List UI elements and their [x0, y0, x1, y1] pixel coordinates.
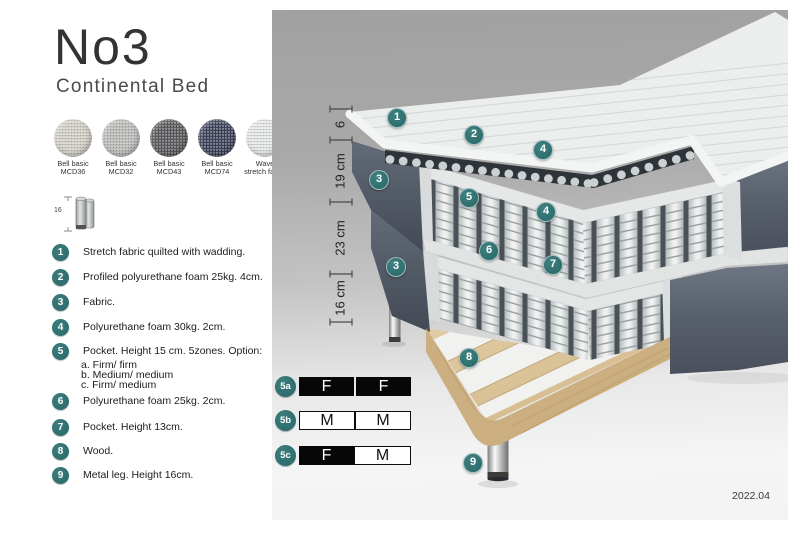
swatch-label: Bell basicMCD43 — [145, 160, 193, 177]
legend-number: 4 — [52, 319, 69, 336]
firmness-id: 5b — [275, 410, 296, 431]
legend-item-7: 7Pocket. Height 13cm. — [52, 419, 183, 436]
legend-text: Metal leg. Height 16cm. — [83, 467, 193, 484]
firmness-box: MM — [299, 411, 411, 430]
legend-number: 8 — [52, 443, 69, 460]
bed-cutaway-diagram: 619 cm23 cm16 cm — [272, 10, 788, 520]
fabric-base-right — [670, 264, 788, 374]
legend-item-9: 9Metal leg. Height 16cm. — [52, 467, 193, 484]
product-photo-panel: 619 cm23 cm16 cm 12435467389 5aFF5bMM5cF… — [272, 10, 788, 520]
legend-number: 5 — [52, 343, 69, 360]
legend-text: Pocket. Height 15 cm. 5zones. Option: — [83, 343, 262, 360]
firmness-cell: F — [356, 377, 411, 396]
firmness-cell: F — [299, 446, 354, 465]
swatch-circle — [54, 119, 92, 157]
firmness-cell: F — [299, 377, 354, 396]
legend-number: 7 — [52, 419, 69, 436]
legend-text: Stretch fabric quilted with wadding. — [83, 244, 245, 261]
firmness-id: 5a — [275, 376, 296, 397]
page-subtitle: Continental Bed — [56, 76, 209, 98]
legend-text: Profiled polyurethane foam 25kg. 4cm. — [83, 269, 263, 286]
swatch-label: Bell basicMCD36 — [49, 160, 97, 177]
dimension-marks: 619 cm23 cm16 cm — [330, 106, 352, 326]
firmness-cell: M — [355, 411, 411, 430]
legend-number: 2 — [52, 269, 69, 286]
legend-number: 1 — [52, 244, 69, 261]
version-label: 2022.04 — [732, 490, 770, 502]
firmness-row-5c: 5cFM — [275, 445, 411, 466]
firmness-id: 5c — [275, 445, 296, 466]
legend-item-5: 5Pocket. Height 15 cm. 5zones. Option:a.… — [52, 343, 262, 390]
swatch-circle — [102, 119, 140, 157]
leg-height-value: 16 — [54, 207, 62, 214]
fabric-swatch-mcd43: Bell basicMCD43 — [145, 119, 193, 177]
firmness-cell: M — [354, 446, 411, 465]
fabric-swatch-mcd32: Bell basicMCD32 — [97, 119, 145, 177]
swatch-label: Bell basicMCD32 — [97, 160, 145, 177]
firmness-cell: M — [299, 411, 355, 430]
legend-item-6: 6Polyurethane foam 25kg. 2cm. — [52, 393, 225, 410]
legend-item-2: 2Profiled polyurethane foam 25kg. 4cm. — [52, 269, 263, 286]
legend-text: Polyurethane foam 25kg. 2cm. — [83, 393, 225, 410]
legend-item-3: 3Fabric. — [52, 294, 115, 311]
legend-item-4: 4Polyurethane foam 30kg. 2cm. — [52, 319, 225, 336]
legend-text: Polyurethane foam 30kg. 2cm. — [83, 319, 225, 336]
firmness-row-5a: 5aFF — [275, 376, 411, 397]
legend-text: Pocket. Height 13cm. — [83, 419, 183, 436]
fabric-swatch-list: Bell basicMCD36Bell basicMCD32Bell basic… — [49, 119, 289, 177]
legend-number: 9 — [52, 467, 69, 484]
legend-text: Wood. — [83, 443, 113, 460]
firmness-box: FF — [299, 377, 411, 396]
frame-post — [722, 178, 742, 260]
measurement-label: 19 cm — [333, 153, 348, 188]
measurement-label: 16 cm — [333, 280, 348, 315]
legend-option: c. Firm/ medium — [81, 380, 262, 390]
legend-options: a. Firm/ firmb. Medium/ mediumc. Firm/ m… — [69, 360, 262, 390]
measurement-label: 6 — [333, 121, 348, 128]
legend-number: 3 — [52, 294, 69, 311]
legend-text: Fabric. — [83, 294, 115, 311]
firmness-box: FM — [299, 446, 411, 465]
fabric-swatch-mcd36: Bell basicMCD36 — [49, 119, 97, 177]
legend-item-1: 1Stretch fabric quilted with wadding. — [52, 244, 245, 261]
swatch-circle — [150, 119, 188, 157]
firmness-row-5b: 5bMM — [275, 410, 411, 431]
page-title: No3 — [54, 22, 152, 72]
leg-height-icon: 16 — [54, 192, 110, 236]
measurement-label: 23 cm — [333, 220, 348, 255]
fabric-swatch-mcd74: Bell basicMCD74 — [193, 119, 241, 177]
leg-height-icon-graphic — [54, 192, 110, 236]
swatch-label: Bell basicMCD74 — [193, 160, 241, 177]
swatch-circle — [198, 119, 236, 157]
legend-number: 6 — [52, 393, 69, 410]
legend-item-8: 8Wood. — [52, 443, 113, 460]
